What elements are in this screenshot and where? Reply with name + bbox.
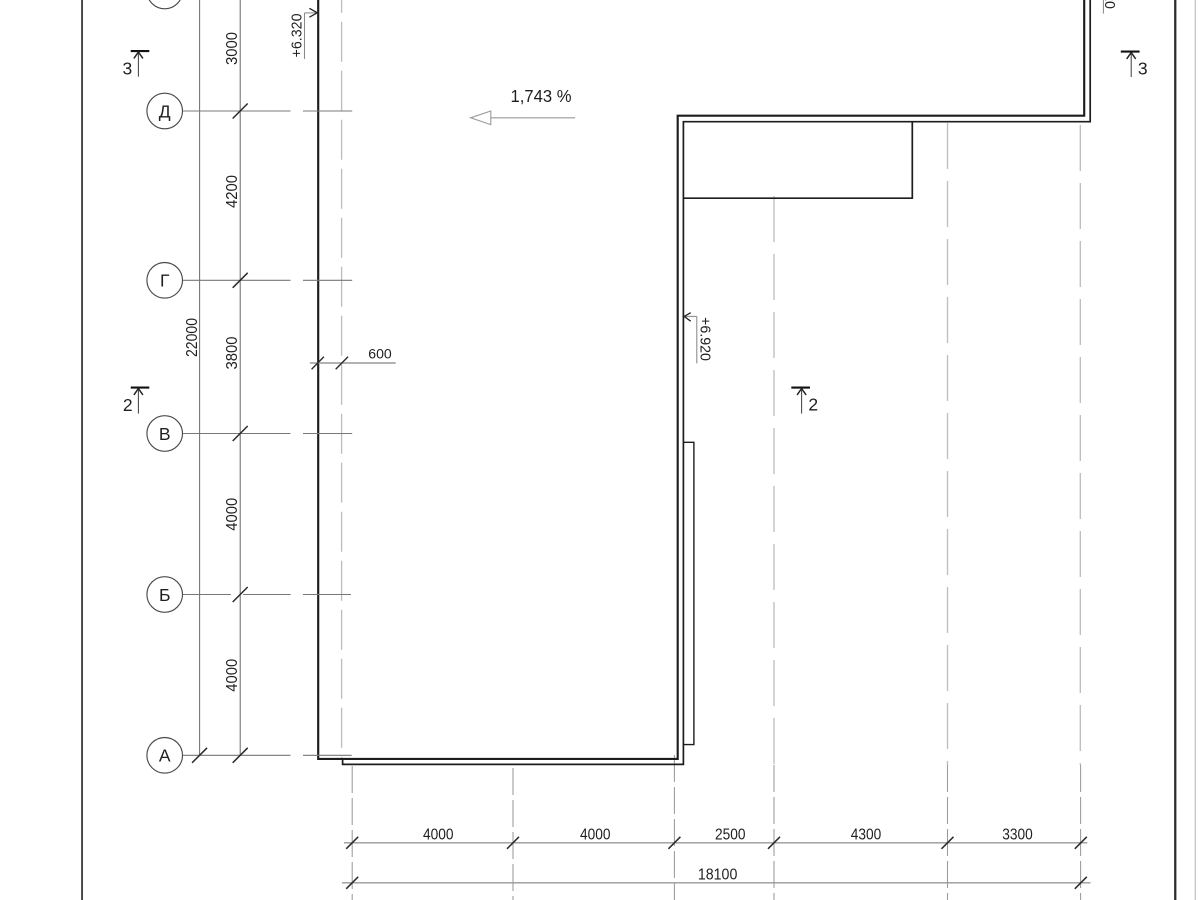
svg-text:2500: 2500 (715, 826, 746, 843)
svg-text:Б: Б (159, 585, 170, 605)
svg-text:В: В (159, 424, 171, 444)
svg-text:+6.320: +6.320 (289, 14, 306, 58)
svg-text:Д: Д (159, 101, 171, 121)
svg-text:22000: 22000 (184, 318, 201, 357)
svg-text:2: 2 (808, 395, 818, 415)
svg-text:+6.920: +6.920 (697, 317, 714, 361)
svg-text:3000: 3000 (224, 32, 241, 65)
svg-text:4200: 4200 (224, 175, 241, 208)
svg-text:А: А (159, 746, 171, 766)
svg-text:4000: 4000 (224, 659, 241, 692)
svg-text:600: 600 (368, 345, 392, 361)
svg-text:18100: 18100 (698, 866, 738, 883)
svg-text:4000: 4000 (423, 826, 454, 843)
svg-text:3: 3 (123, 58, 133, 78)
svg-text:4000: 4000 (580, 826, 611, 843)
svg-text:+6.320: +6.320 (1101, 0, 1118, 9)
svg-text:3800: 3800 (224, 336, 241, 369)
svg-text:1,743 %: 1,743 % (511, 86, 572, 106)
svg-text:4000: 4000 (224, 498, 241, 531)
svg-text:3300: 3300 (1002, 826, 1033, 843)
svg-text:4300: 4300 (851, 826, 882, 843)
svg-text:Г: Г (160, 271, 170, 291)
svg-text:3: 3 (1138, 59, 1148, 79)
svg-text:2: 2 (123, 395, 133, 415)
